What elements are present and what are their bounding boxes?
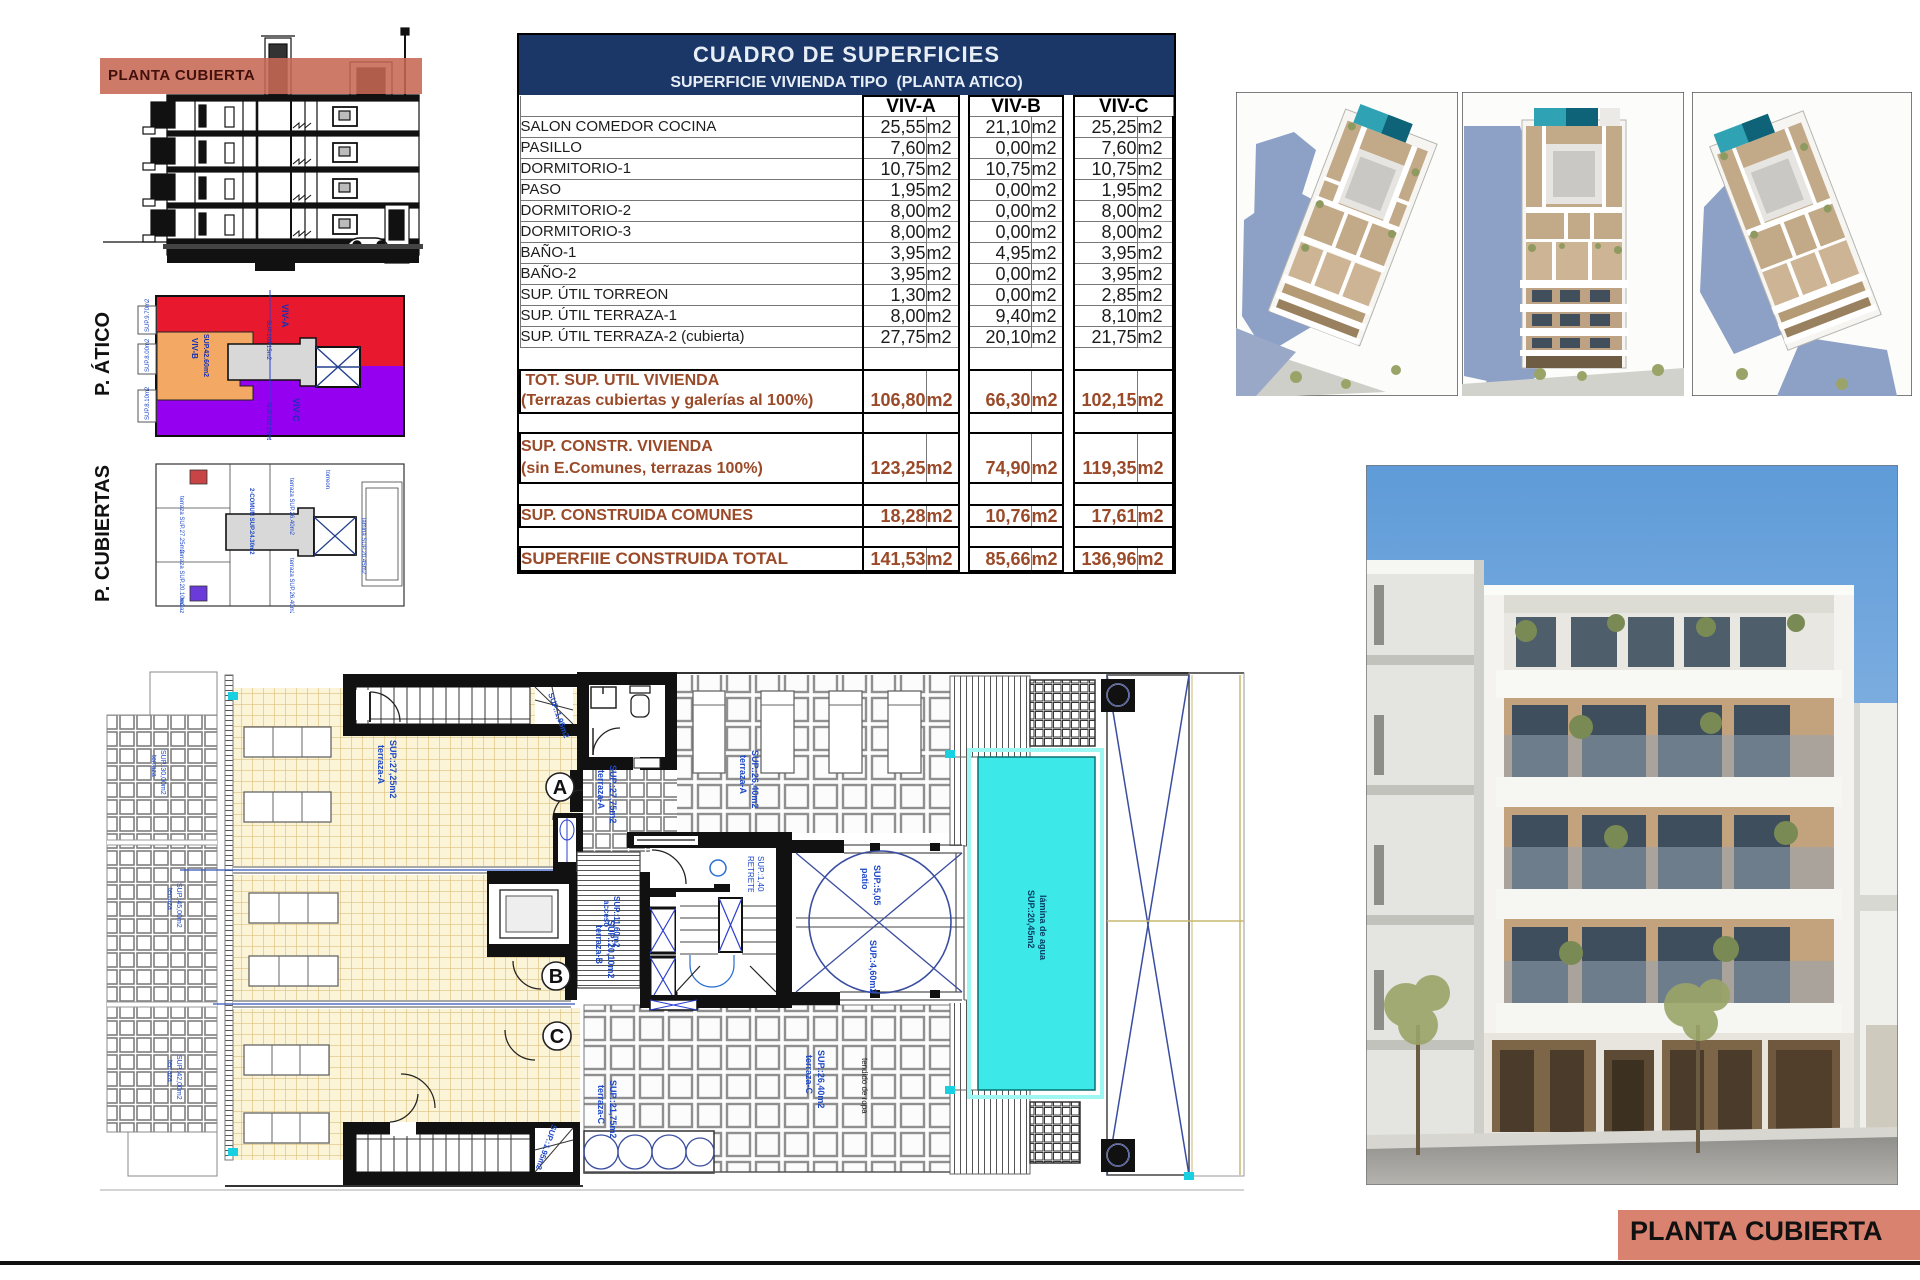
svg-text:terraza-A: terraza-A [376,745,386,785]
svg-text:tendido de ropa: tendido de ropa [860,1058,869,1114]
svg-text:SUP.:5,05: SUP.:5,05 [872,865,882,905]
svg-text:C: C [550,1026,564,1048]
svg-text:terraza: terraza [166,1060,173,1082]
svg-text:SUP.:45,00m2: SUP.:45,00m2 [175,883,182,928]
svg-text:acceso: acceso [602,900,611,927]
svg-text:terraza: terraza [150,755,157,777]
svg-text:terraza-C: terraza-C [596,1085,606,1125]
svg-text:terraza-A: terraza-A [738,755,748,795]
svg-text:patio: patio [860,868,870,890]
svg-text:lámina de agua: lámina de agua [1038,895,1048,961]
svg-text:SUP.:26,40m2: SUP.:26,40m2 [750,750,760,808]
svg-text:SUP.:11,60m2: SUP.:11,60m2 [612,896,621,948]
svg-text:terraza-B: terraza-B [594,925,604,965]
svg-text:B: B [549,966,563,988]
svg-text:A: A [553,777,567,799]
svg-text:terraza-C: terraza-C [804,1055,814,1095]
svg-text:SUP.:26,40m2: SUP.:26,40m2 [816,1050,826,1108]
svg-text:terraza-A: terraza-A [596,770,606,810]
svg-text:SUP.:27,25m2: SUP.:27,25m2 [388,740,398,798]
svg-text:SUP.:20,45m2: SUP.:20,45m2 [1026,890,1036,948]
svg-text:SUP.:21,75m2: SUP.:21,75m2 [608,1080,618,1138]
svg-text:SUP.:42,00m2: SUP.:42,00m2 [175,1055,182,1100]
svg-text:SUP.:4,60m2: SUP.:4,60m2 [868,940,878,993]
svg-text:RETRETE: RETRETE [746,856,755,893]
svg-text:SUP.:27,75m2: SUP.:27,75m2 [608,765,618,823]
svg-text:terraza: terraza [166,888,173,910]
svg-text:SUP.:30,00m2: SUP.:30,00m2 [159,750,166,795]
